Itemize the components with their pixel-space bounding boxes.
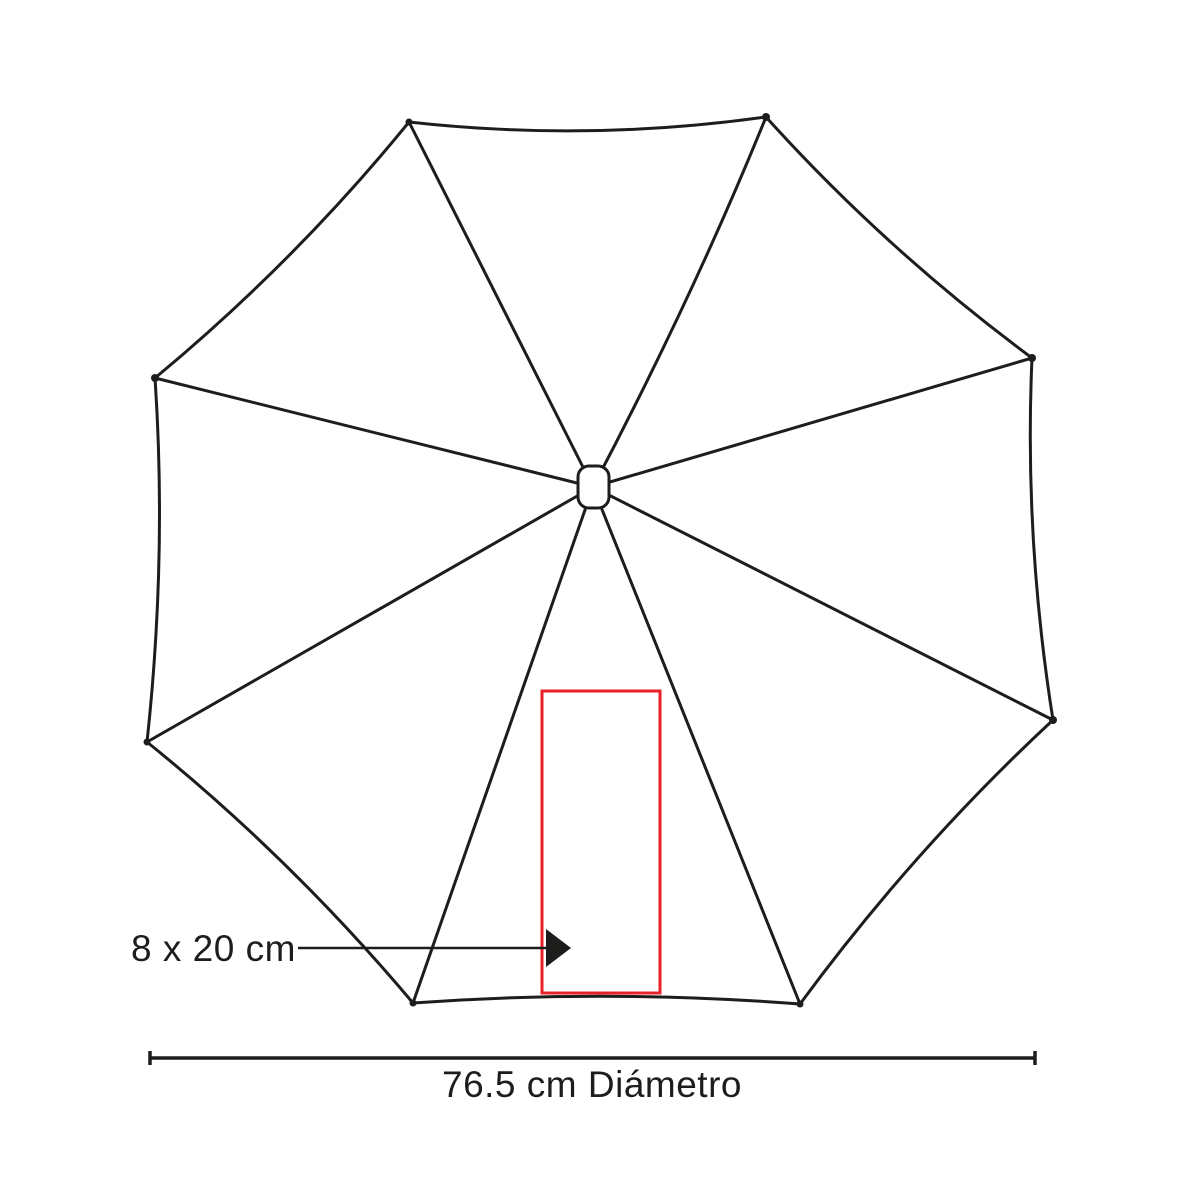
rib-tip-dot — [144, 739, 151, 746]
diameter-label: 76.5 cm Diámetro — [442, 1066, 742, 1103]
rib-tip-dot — [406, 119, 413, 126]
print-area-arrowhead-icon — [546, 929, 571, 967]
rib-tip-dot — [410, 1000, 417, 1007]
umbrella-rib — [409, 122, 593, 487]
rib-tip-dots — [144, 113, 1058, 1008]
umbrella-rib — [147, 487, 593, 742]
rib-tip-dot — [797, 1001, 804, 1008]
umbrella-canopy-outline — [147, 117, 1053, 1004]
rib-tip-dot — [762, 113, 770, 121]
umbrella-rib — [593, 487, 1053, 720]
diameter-dimension-line — [150, 1051, 1035, 1065]
rib-tip-dot — [1028, 354, 1036, 362]
umbrella-ribs — [147, 117, 1053, 1004]
print-area-label: 8 x 20 cm — [131, 930, 296, 967]
umbrella-rib — [413, 487, 593, 1003]
umbrella-rib — [593, 487, 800, 1004]
umbrella-diagram — [0, 0, 1200, 1200]
rib-tip-dot — [1049, 716, 1057, 724]
umbrella-rib — [155, 378, 593, 487]
print-area-arrow — [298, 929, 571, 967]
rib-tip-dot — [151, 374, 159, 382]
diagram-canvas: 8 x 20 cm 76.5 cm Diámetro — [0, 0, 1200, 1200]
center-hub — [578, 466, 609, 508]
umbrella-rib — [593, 117, 766, 487]
umbrella-rib — [593, 358, 1032, 487]
